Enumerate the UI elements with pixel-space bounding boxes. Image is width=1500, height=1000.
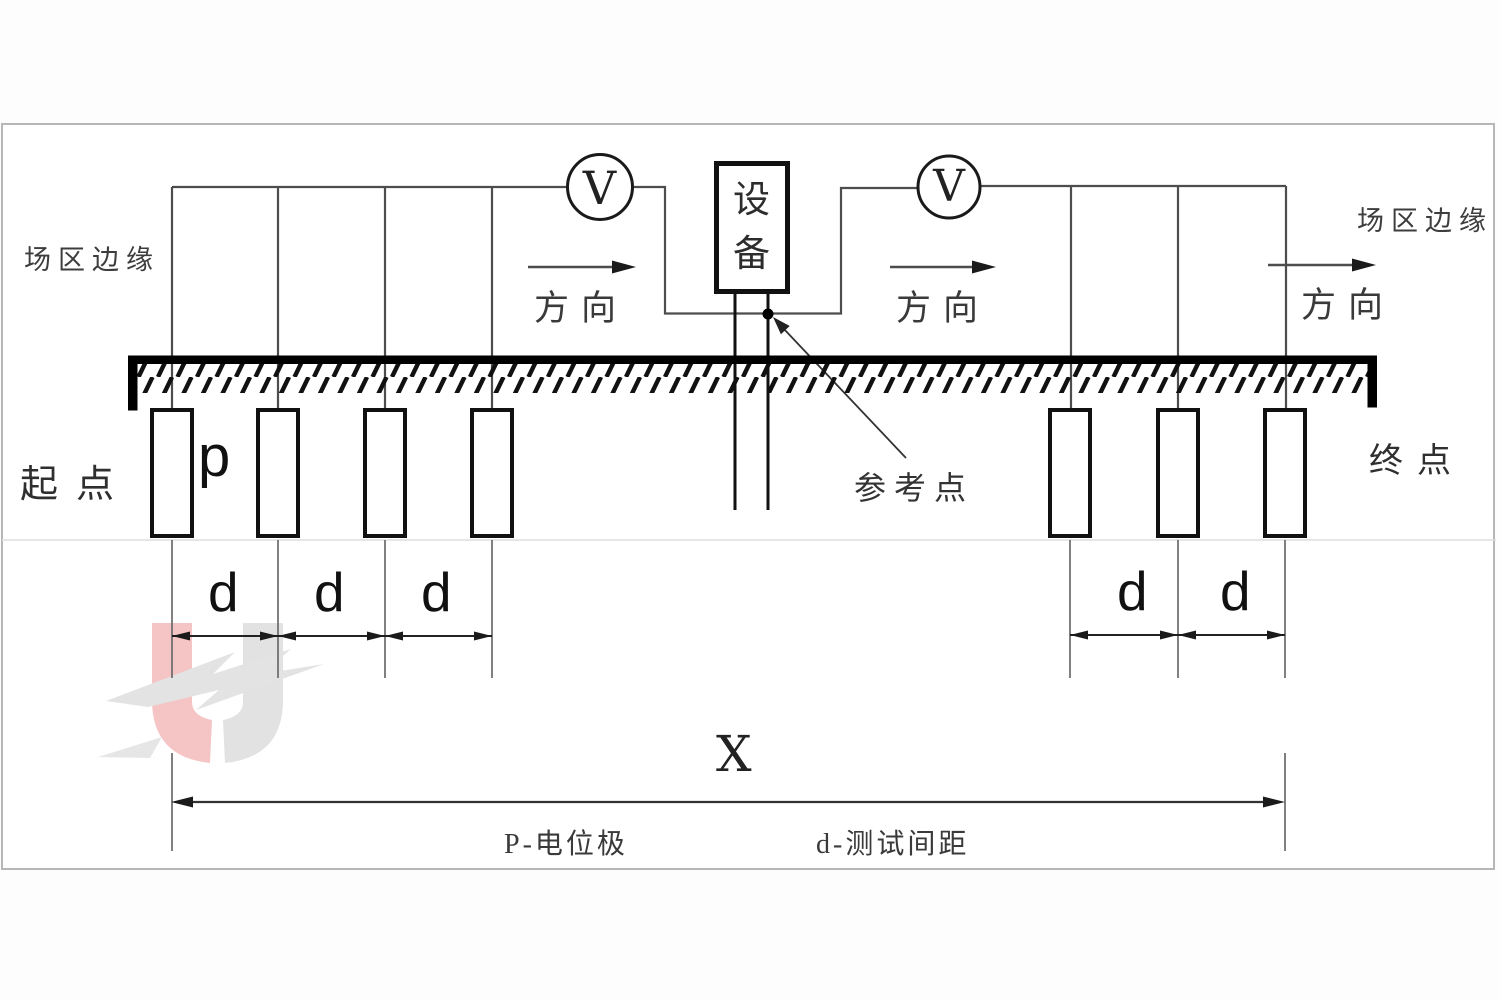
electrode-right-3 bbox=[1265, 410, 1305, 536]
field-edge-label-right: 场区边缘 bbox=[1357, 208, 1493, 235]
start-point-label: 起点 bbox=[20, 466, 132, 504]
electrodes bbox=[152, 410, 1305, 536]
ground-line bbox=[128, 356, 1377, 365]
direction-label-right: 方向 bbox=[1301, 288, 1395, 323]
x-arrowhead-left bbox=[171, 797, 193, 808]
direction-arrowhead-center bbox=[972, 261, 996, 274]
electrode-right-1 bbox=[1050, 410, 1090, 536]
voltmeter-right-label: V bbox=[918, 156, 980, 218]
spacing-label-2: d bbox=[314, 565, 345, 620]
diagram-stage: 场区边缘 场区边缘 V V 设备 方向 方向 方向 起点 终点 p d d d … bbox=[0, 0, 1500, 1000]
ground-hatching bbox=[137, 364, 1368, 393]
total-span-label: X bbox=[716, 729, 752, 779]
direction-arrowhead-right bbox=[1352, 259, 1376, 272]
legend-test-spacing: d-测试间距 bbox=[816, 831, 969, 859]
direction-label-center: 方向 bbox=[896, 291, 990, 326]
direction-arrows bbox=[528, 259, 1376, 274]
voltmeter-left-label: V bbox=[567, 155, 632, 220]
direction-label-left: 方向 bbox=[534, 291, 628, 326]
electrode-right-2 bbox=[1158, 410, 1198, 536]
spacing-label-4: d bbox=[1117, 564, 1148, 619]
electrode-left-1 bbox=[152, 410, 192, 536]
reference-point-label: 参考点 bbox=[854, 472, 974, 504]
equipment-label-box: 设备 bbox=[716, 164, 787, 291]
watermark-lightning-icon bbox=[106, 649, 324, 710]
equipment-label: 设备 bbox=[730, 174, 774, 281]
ground-end-right bbox=[1368, 356, 1378, 408]
direction-arrowhead-left bbox=[612, 261, 636, 274]
watermark-lightning-tail bbox=[98, 737, 162, 758]
spacing-label-5: d bbox=[1220, 564, 1251, 619]
legend-potential-electrode: P-电位极 bbox=[504, 831, 628, 859]
reference-point-dot bbox=[763, 309, 774, 320]
electrode-left-4 bbox=[472, 410, 512, 536]
spacing-label-1: d bbox=[208, 565, 239, 620]
electrode-left-3 bbox=[365, 410, 405, 536]
ground-end-left bbox=[128, 356, 138, 411]
field-edge-label-left: 场区边缘 bbox=[24, 247, 160, 274]
electrode-left-2 bbox=[258, 410, 298, 536]
potential-electrode-label: p bbox=[198, 428, 230, 486]
watermark-logo bbox=[98, 623, 324, 763]
x-arrowhead-right bbox=[1263, 797, 1285, 808]
spacing-label-3: d bbox=[421, 565, 452, 620]
end-point-label: 终点 bbox=[1369, 445, 1465, 479]
diagram-drawing bbox=[0, 0, 1500, 1000]
